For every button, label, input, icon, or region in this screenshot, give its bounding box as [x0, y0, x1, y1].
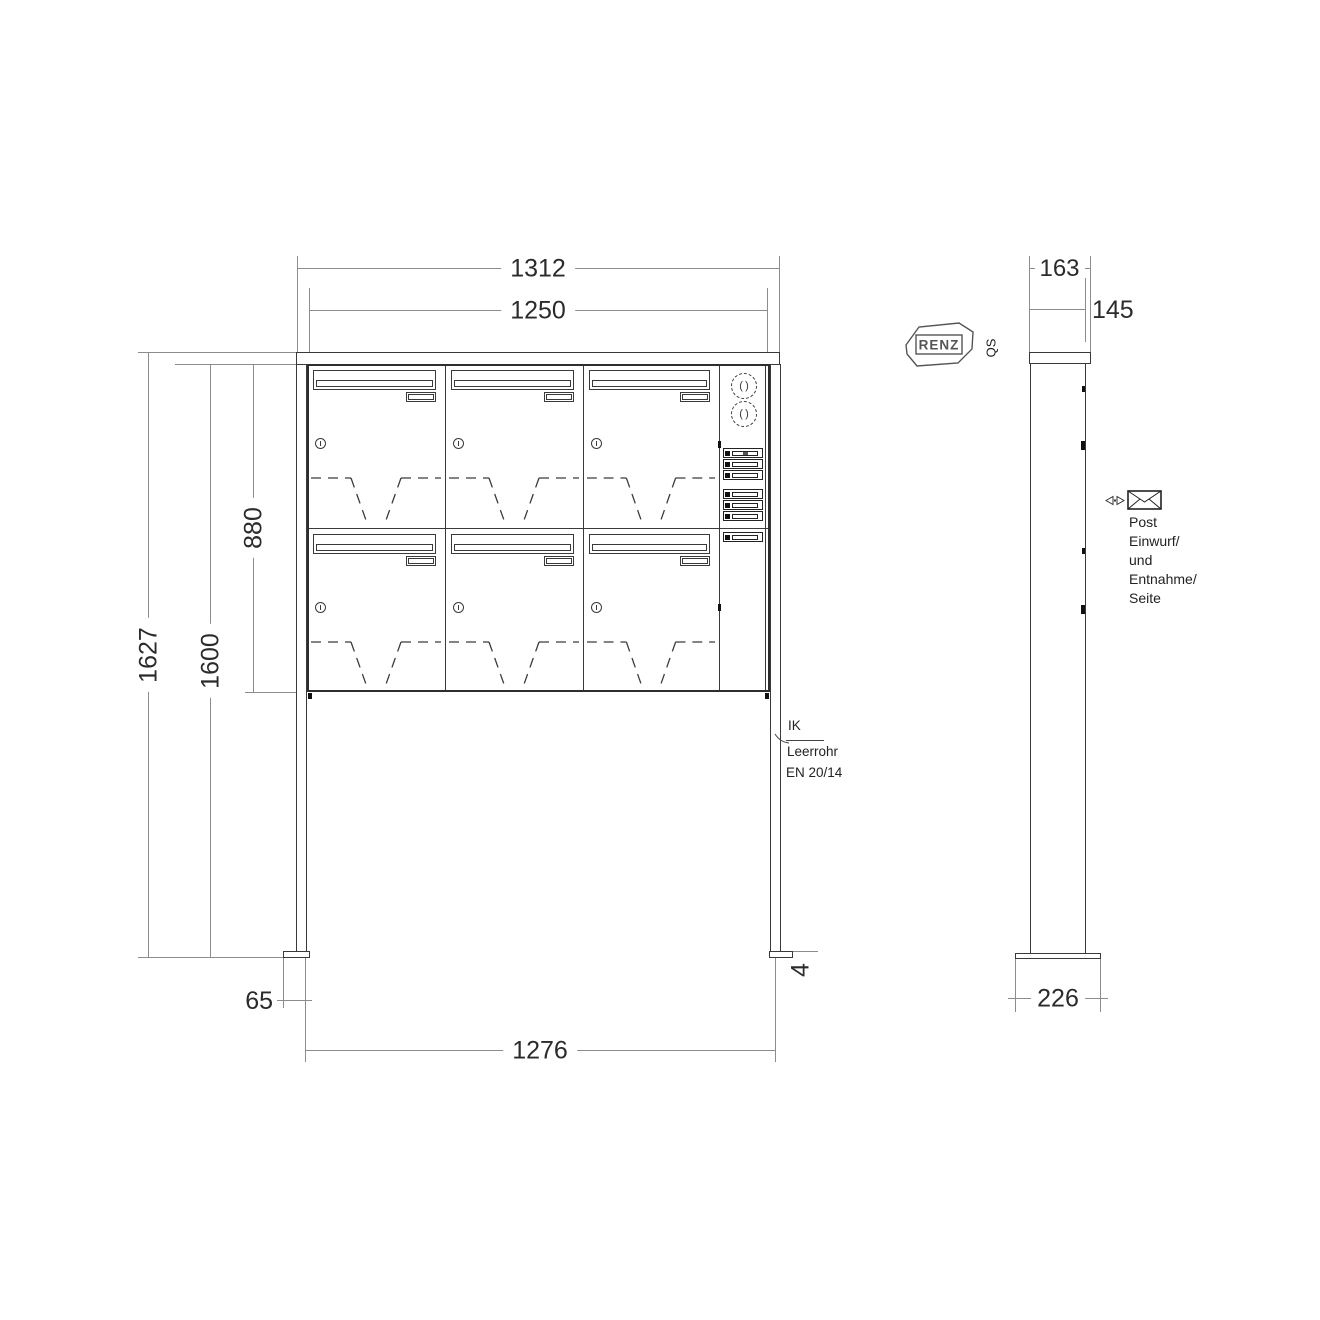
- ext-line: [1090, 256, 1091, 352]
- mailbox-door: [585, 530, 717, 690]
- speaker-icon: ( ): [731, 373, 757, 399]
- dimension-foot-depth: 226: [1008, 998, 1108, 999]
- side-fixing-mark: [1082, 548, 1085, 554]
- row-divider: [309, 528, 768, 529]
- technical-drawing-canvas: 1312 1250 1627 1600 880 65 1276 4: [0, 0, 1320, 1320]
- left-post: [296, 364, 307, 952]
- side-fixing-mark: [1081, 441, 1085, 450]
- dim-label-1250: 1250: [501, 296, 575, 325]
- dim-label-226: 226: [1031, 984, 1085, 1013]
- fixing-mark: [765, 693, 769, 699]
- ext-line: [1029, 256, 1030, 352]
- dimension-body-height: 880: [253, 364, 254, 692]
- chute-dashed-lines-icon: [309, 366, 443, 526]
- ext-line: [767, 288, 768, 352]
- ext-line: [138, 352, 296, 353]
- renz-logo: RENZ: [903, 320, 979, 370]
- dimension-total-height: 1627: [148, 352, 149, 957]
- side-note-line: Entnahme/: [1129, 570, 1197, 589]
- mailbox-door: [447, 366, 581, 526]
- side-note-line: Einwurf/: [1129, 532, 1180, 551]
- note-underline: [786, 740, 824, 741]
- side-note-line: und: [1129, 551, 1152, 570]
- bell-button: [723, 500, 763, 510]
- side-post: [1030, 363, 1086, 954]
- dimension-overall-width: 1312: [297, 268, 779, 269]
- envelope-icon: [1127, 490, 1162, 510]
- note-en: EN 20/14: [786, 765, 842, 780]
- right-post: [770, 364, 781, 952]
- mailbox-door: [309, 366, 443, 526]
- dimension-anchor-width: 1276: [305, 1050, 775, 1051]
- ext-line: [1015, 959, 1016, 1012]
- dim-line-145: [1029, 309, 1085, 310]
- bell-button: [723, 459, 763, 469]
- chute-dashed-lines-icon: [309, 530, 443, 690]
- chute-dashed-lines-icon: [585, 366, 717, 526]
- qs-label: QS: [984, 339, 999, 358]
- hinge-mark: [718, 604, 721, 611]
- side-foot-plate: [1015, 953, 1101, 959]
- left-foot-plate: [283, 951, 310, 958]
- dim-label-1627: 1627: [134, 618, 163, 692]
- fixing-mark: [308, 693, 312, 699]
- dimension-body-width: 1250: [309, 310, 767, 311]
- chute-dashed-lines-icon: [447, 366, 581, 526]
- note-leerrohr: Leerrohr: [787, 744, 838, 759]
- ext-line: [775, 958, 776, 1062]
- hinge-mark: [718, 441, 721, 448]
- ext-line: [297, 256, 298, 352]
- bell-button: [723, 489, 763, 499]
- ext-line: [309, 288, 310, 352]
- dim-line-65: [277, 1000, 312, 1001]
- dim-label-1600: 1600: [196, 624, 225, 698]
- mailbox-door: [585, 366, 717, 526]
- dim-label-880: 880: [239, 498, 268, 558]
- side-note-line: Seite: [1129, 589, 1161, 608]
- mailbox-door: [309, 530, 443, 690]
- ext-line: [779, 256, 780, 352]
- eye-icon: [1105, 495, 1125, 506]
- ext-line: [175, 364, 296, 365]
- side-fixing-mark: [1082, 386, 1085, 392]
- bell-button: [723, 470, 763, 480]
- dimension-post-height: 1600: [210, 364, 211, 957]
- dim-label-4: 4: [787, 963, 816, 977]
- bell-button: [723, 511, 763, 521]
- ext-line: [1085, 278, 1086, 342]
- bell-button: [723, 532, 763, 542]
- dim-label-145: 145: [1092, 296, 1134, 325]
- side-fixing-mark: [1081, 605, 1085, 614]
- right-foot-plate: [769, 951, 793, 958]
- dimension-overall-depth: 163: [1029, 268, 1090, 269]
- dim-label-1312: 1312: [501, 254, 575, 283]
- dim-label-1276: 1276: [503, 1036, 577, 1065]
- side-note-line: Post: [1129, 513, 1157, 532]
- dim-label-65: 65: [243, 987, 273, 1016]
- dim-label-163: 163: [1034, 255, 1084, 283]
- bell-button: [723, 448, 763, 458]
- svg-text:RENZ: RENZ: [919, 338, 960, 353]
- dim-line-4: [793, 951, 818, 952]
- chute-dashed-lines-icon: [447, 530, 581, 690]
- mailbox-door: [447, 530, 581, 690]
- ext-line-ground: [138, 957, 284, 958]
- ext-line: [305, 958, 306, 1062]
- note-ik: IK: [788, 718, 801, 733]
- speaker-icon: ( ): [731, 401, 757, 427]
- chute-dashed-lines-icon: [585, 530, 717, 690]
- ext-line: [1100, 959, 1101, 1012]
